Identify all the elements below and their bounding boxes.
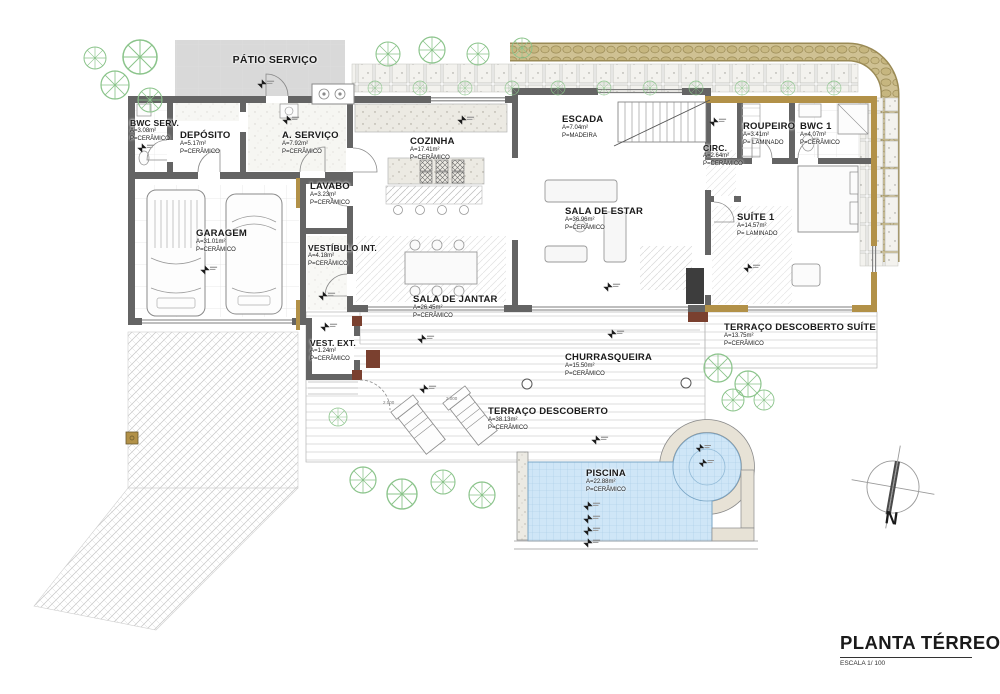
floor-plan-sheet: PÁTIO SERVIÇO BWC SERV. A=3.08m²P=CERÂMI…: [0, 0, 1000, 694]
driveway-herringbone: [34, 332, 298, 630]
sheet-scale: ESCALA 1/ 100: [840, 660, 972, 667]
living-room-sofas: [545, 180, 626, 262]
wardrobe: [742, 104, 760, 157]
sheet-title: PLANTA TÉRREO: [840, 632, 972, 654]
terrace-deck: [306, 312, 877, 462]
floor-plan-drawing: [0, 0, 1000, 694]
suite-bed: [792, 166, 858, 286]
kitchen-counters: [355, 104, 507, 215]
staircase: [614, 100, 710, 146]
title-rule: [840, 657, 972, 658]
dimension-label: 2.000: [446, 396, 457, 401]
title-block: PLANTA TÉRREO ESCALA 1/ 100: [840, 632, 972, 667]
stove: [312, 84, 354, 104]
dimension-label: 2.000: [383, 400, 394, 405]
